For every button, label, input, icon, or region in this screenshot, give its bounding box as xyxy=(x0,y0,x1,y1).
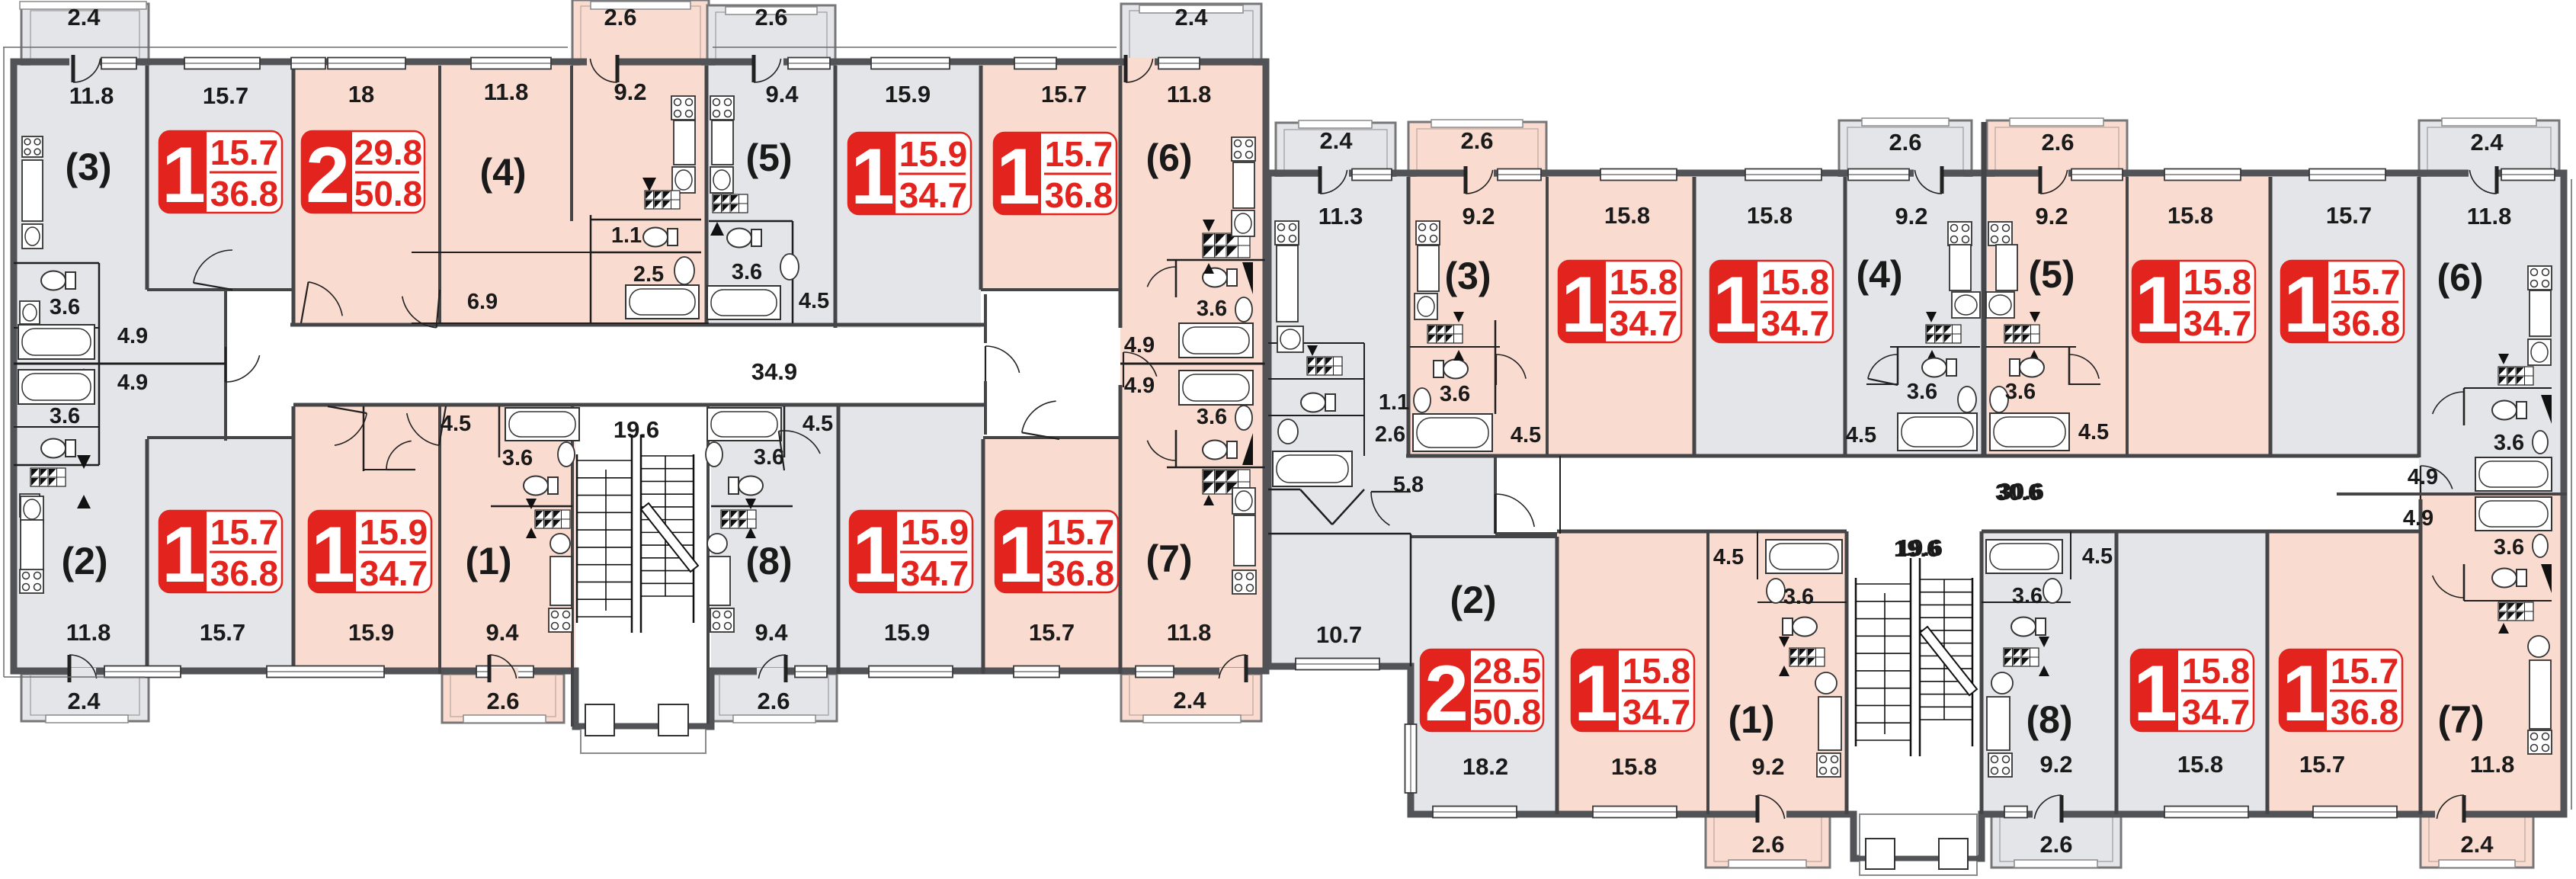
svg-text:15.7: 15.7 xyxy=(2331,651,2399,691)
svg-text:4.5: 4.5 xyxy=(799,289,829,313)
svg-text:3.6: 3.6 xyxy=(502,446,533,470)
svg-text:15.9: 15.9 xyxy=(901,512,969,552)
svg-text:15.7: 15.7 xyxy=(200,619,245,646)
svg-text:30.6: 30.6 xyxy=(1998,478,2044,505)
svg-text:3.6: 3.6 xyxy=(732,260,762,284)
svg-text:2.4: 2.4 xyxy=(67,688,101,714)
svg-text:2.4: 2.4 xyxy=(2470,129,2504,156)
svg-text:(3): (3) xyxy=(1444,255,1491,297)
svg-text:34.7: 34.7 xyxy=(901,553,969,593)
svg-text:6.9: 6.9 xyxy=(467,290,498,314)
svg-text:(1): (1) xyxy=(465,540,511,582)
svg-text:15.8: 15.8 xyxy=(1623,651,1691,691)
svg-text:15.8: 15.8 xyxy=(2184,262,2252,302)
svg-text:34.9: 34.9 xyxy=(751,358,797,385)
svg-text:2.6: 2.6 xyxy=(1375,422,1405,447)
svg-text:1: 1 xyxy=(162,511,206,599)
svg-text:1: 1 xyxy=(1574,650,1618,738)
svg-text:4.5: 4.5 xyxy=(2082,544,2113,569)
svg-text:5.8: 5.8 xyxy=(1393,473,1424,497)
svg-text:3.6: 3.6 xyxy=(754,445,784,470)
svg-text:9.4: 9.4 xyxy=(755,619,788,646)
svg-text:2.5: 2.5 xyxy=(633,262,664,287)
svg-text:2.6: 2.6 xyxy=(757,688,790,714)
svg-text:15.7: 15.7 xyxy=(210,133,279,172)
svg-text:15.8: 15.8 xyxy=(1761,262,1830,302)
svg-text:4.5: 4.5 xyxy=(1846,423,1876,448)
svg-text:1: 1 xyxy=(996,133,1040,221)
svg-text:3.6: 3.6 xyxy=(1440,382,1470,406)
svg-text:1: 1 xyxy=(2282,650,2326,738)
svg-text:2: 2 xyxy=(306,131,350,220)
svg-text:11.8: 11.8 xyxy=(1167,619,1212,646)
svg-text:36.8: 36.8 xyxy=(1046,553,1115,593)
svg-text:15.9: 15.9 xyxy=(885,81,931,107)
svg-text:3.6: 3.6 xyxy=(50,295,80,319)
svg-text:15.8: 15.8 xyxy=(1747,202,1793,229)
svg-text:18.2: 18.2 xyxy=(1463,753,1508,780)
svg-text:4.9: 4.9 xyxy=(1124,374,1155,398)
svg-text:11.3: 11.3 xyxy=(1318,203,1363,229)
svg-text:9.2: 9.2 xyxy=(2035,203,2068,229)
svg-text:2.6: 2.6 xyxy=(1751,831,1784,858)
svg-text:15.7: 15.7 xyxy=(2326,202,2372,229)
svg-text:2.6: 2.6 xyxy=(1460,127,1493,154)
svg-text:(7): (7) xyxy=(1145,537,1192,580)
svg-text:15.9: 15.9 xyxy=(884,619,930,646)
svg-text:15.7: 15.7 xyxy=(2299,751,2345,778)
svg-text:2.6: 2.6 xyxy=(604,4,636,30)
svg-text:36.8: 36.8 xyxy=(2331,692,2399,732)
svg-text:3.6: 3.6 xyxy=(50,404,80,428)
svg-text:15.7: 15.7 xyxy=(210,512,279,552)
svg-text:(5): (5) xyxy=(2028,253,2075,296)
svg-text:15.7: 15.7 xyxy=(1046,512,1115,552)
svg-text:36.8: 36.8 xyxy=(2332,303,2401,343)
svg-text:(5): (5) xyxy=(745,136,792,179)
svg-text:15.8: 15.8 xyxy=(1611,753,1657,780)
svg-text:4.5: 4.5 xyxy=(1511,423,1541,448)
svg-text:4.5: 4.5 xyxy=(1713,545,1744,569)
svg-text:34.7: 34.7 xyxy=(2184,303,2252,343)
svg-text:11.8: 11.8 xyxy=(66,619,111,646)
svg-text:1: 1 xyxy=(2283,261,2328,349)
svg-text:4.9: 4.9 xyxy=(2403,506,2433,531)
svg-text:29.8: 29.8 xyxy=(354,133,423,172)
svg-text:2.4: 2.4 xyxy=(2460,831,2494,858)
svg-text:1: 1 xyxy=(851,133,895,221)
svg-text:(2): (2) xyxy=(1450,579,1496,621)
svg-text:50.8: 50.8 xyxy=(1473,692,1542,732)
svg-text:2.6: 2.6 xyxy=(755,4,787,30)
svg-text:2.6: 2.6 xyxy=(2039,831,2072,858)
svg-text:2.4: 2.4 xyxy=(1174,4,1208,30)
svg-text:1.1: 1.1 xyxy=(611,223,642,248)
svg-text:4.9: 4.9 xyxy=(117,324,148,348)
svg-text:(1): (1) xyxy=(1728,698,1774,741)
svg-text:1: 1 xyxy=(311,511,355,599)
svg-text:(8): (8) xyxy=(745,540,792,582)
svg-text:1.1: 1.1 xyxy=(1379,390,1409,415)
svg-text:3.6: 3.6 xyxy=(1783,585,1814,609)
svg-text:34.7: 34.7 xyxy=(899,175,968,215)
svg-text:4.5: 4.5 xyxy=(803,412,833,436)
svg-text:3.6: 3.6 xyxy=(1197,297,1227,321)
svg-text:36.8: 36.8 xyxy=(210,174,279,213)
svg-text:34.7: 34.7 xyxy=(360,553,428,593)
svg-text:11.8: 11.8 xyxy=(484,79,529,105)
svg-text:(6): (6) xyxy=(1145,136,1192,179)
svg-text:18: 18 xyxy=(348,81,374,107)
svg-text:11.8: 11.8 xyxy=(2470,751,2515,778)
svg-text:11.8: 11.8 xyxy=(69,82,114,109)
svg-text:15.8: 15.8 xyxy=(2182,651,2251,691)
svg-text:1: 1 xyxy=(1713,261,1757,349)
svg-text:34.7: 34.7 xyxy=(1623,692,1691,732)
svg-text:11.8: 11.8 xyxy=(2467,203,2512,229)
svg-text:11.8: 11.8 xyxy=(1167,81,1212,107)
svg-text:34.7: 34.7 xyxy=(1761,303,1830,343)
svg-text:15.8: 15.8 xyxy=(1610,262,1678,302)
svg-text:3.6: 3.6 xyxy=(1197,405,1227,429)
svg-text:9.2: 9.2 xyxy=(614,79,646,105)
svg-text:15.9: 15.9 xyxy=(348,619,394,646)
svg-text:4.5: 4.5 xyxy=(2078,420,2109,444)
svg-text:34.7: 34.7 xyxy=(1610,303,1678,343)
svg-text:50.8: 50.8 xyxy=(354,174,423,213)
svg-text:9.2: 9.2 xyxy=(1462,203,1495,229)
svg-text:(4): (4) xyxy=(479,151,526,194)
svg-text:15.9: 15.9 xyxy=(360,512,428,552)
svg-text:3.6: 3.6 xyxy=(2005,380,2036,404)
svg-text:9.4: 9.4 xyxy=(765,81,799,107)
svg-text:(3): (3) xyxy=(65,146,111,188)
svg-text:(6): (6) xyxy=(2437,256,2483,299)
svg-text:(2): (2) xyxy=(61,540,107,582)
svg-text:15.8: 15.8 xyxy=(2177,751,2223,778)
svg-text:15.7: 15.7 xyxy=(1045,134,1113,174)
svg-text:(4): (4) xyxy=(1856,253,1902,296)
svg-text:10.7: 10.7 xyxy=(1316,621,1362,648)
svg-text:3.6: 3.6 xyxy=(1907,380,1937,404)
svg-text:(7): (7) xyxy=(2437,698,2484,741)
svg-text:19.6: 19.6 xyxy=(1897,534,1943,561)
svg-text:15.9: 15.9 xyxy=(899,134,968,174)
svg-text:15.7: 15.7 xyxy=(1041,81,1087,107)
svg-text:3.6: 3.6 xyxy=(2494,535,2524,560)
svg-text:4.5: 4.5 xyxy=(441,412,471,436)
svg-text:4.9: 4.9 xyxy=(1124,333,1155,358)
svg-text:2.6: 2.6 xyxy=(2041,129,2074,156)
svg-text:1: 1 xyxy=(162,131,206,220)
svg-text:15.7: 15.7 xyxy=(1029,619,1075,646)
svg-text:4.9: 4.9 xyxy=(117,371,148,395)
svg-text:36.8: 36.8 xyxy=(210,553,279,593)
svg-text:2.4: 2.4 xyxy=(1319,127,1353,154)
svg-text:15.7: 15.7 xyxy=(203,82,248,109)
svg-text:15.8: 15.8 xyxy=(2167,202,2213,229)
svg-text:2.6: 2.6 xyxy=(1889,129,1921,156)
svg-text:1: 1 xyxy=(2135,261,2179,349)
svg-text:19.6: 19.6 xyxy=(614,416,659,443)
svg-text:1: 1 xyxy=(1561,261,1605,349)
svg-text:9.2: 9.2 xyxy=(2039,751,2072,778)
svg-text:34.7: 34.7 xyxy=(2182,692,2251,732)
svg-text:9.2: 9.2 xyxy=(1751,753,1784,780)
svg-text:(8): (8) xyxy=(2026,698,2072,741)
svg-text:2.4: 2.4 xyxy=(67,4,101,30)
svg-text:1: 1 xyxy=(998,511,1042,599)
svg-text:36.8: 36.8 xyxy=(1045,175,1113,215)
svg-text:3.6: 3.6 xyxy=(2494,431,2524,455)
svg-text:4.9: 4.9 xyxy=(2408,465,2438,489)
svg-text:1: 1 xyxy=(2133,650,2177,738)
svg-text:15.7: 15.7 xyxy=(2332,262,2401,302)
svg-text:1: 1 xyxy=(852,511,896,599)
svg-text:28.5: 28.5 xyxy=(1473,651,1542,691)
svg-text:15.8: 15.8 xyxy=(1604,202,1650,229)
svg-text:2.6: 2.6 xyxy=(486,688,519,714)
svg-text:9.2: 9.2 xyxy=(1895,203,1927,229)
svg-text:9.4: 9.4 xyxy=(485,619,519,646)
svg-text:3.6: 3.6 xyxy=(2012,584,2043,608)
svg-text:2.4: 2.4 xyxy=(1173,687,1206,714)
svg-text:2: 2 xyxy=(1424,650,1469,738)
